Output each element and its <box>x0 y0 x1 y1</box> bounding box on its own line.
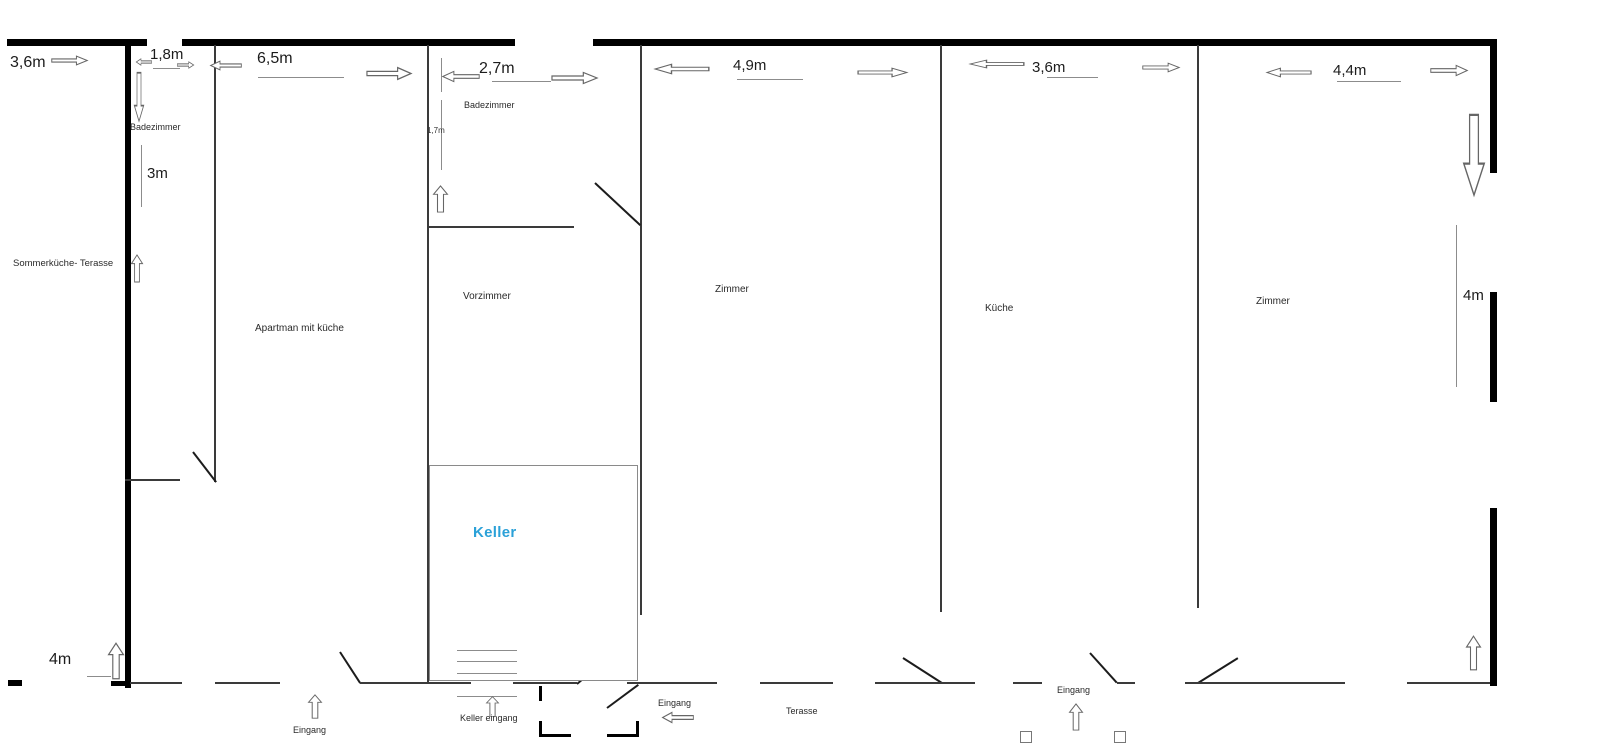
room-label-badezimmer-mid: Badezimmer <box>464 101 515 110</box>
entrance-label-eingang-left: Eingang <box>293 726 326 735</box>
entrance-label-keller-eingang: Keller eingang <box>460 714 518 723</box>
entrance-label-eingang-mid: Eingang <box>658 699 691 708</box>
square-marker-icon <box>1114 731 1126 743</box>
arrow-up-icon <box>1466 635 1481 671</box>
room-label-kueche: Küche <box>985 304 1013 314</box>
dim-zimmer-right-depth: 4m <box>1463 288 1484 303</box>
dim-left-entry-width: 4m <box>49 652 71 668</box>
room-label-apartman-mit-kueche: Apartman mit küche <box>255 324 344 334</box>
porch-wall-d <box>607 734 639 737</box>
dim-line-3m <box>141 145 142 207</box>
room-label-vorzimmer: Vorzimmer <box>463 292 511 302</box>
exterior-wall-left <box>125 39 131 688</box>
dim-sommer-width: 3,6m <box>10 55 46 71</box>
door-swing-eingang-right-a <box>1089 652 1117 683</box>
apartman-door-stub <box>125 479 180 481</box>
keller-room-label: Keller <box>473 525 517 540</box>
door-swing-zimmer-top <box>594 182 641 226</box>
vorzimmer-top-wall <box>427 226 574 228</box>
room-label-zimmer-right: Zimmer <box>1256 297 1290 307</box>
arrow-right-icon <box>551 71 598 85</box>
arrow-right-icon <box>857 67 908 78</box>
arrow-up-icon <box>108 642 124 680</box>
exterior-wall-top-b <box>182 39 515 46</box>
underline-2-7m <box>492 81 551 82</box>
dim-zimmer-right-width: 4,4m <box>1333 63 1366 78</box>
keller-stair-line-1 <box>457 650 517 651</box>
bottom-wall-2 <box>215 682 280 684</box>
arrow-down-icon <box>1463 112 1485 198</box>
bottom-wall-dash-far-left <box>8 680 22 686</box>
porch-wall-a <box>539 686 542 701</box>
dim-bad-mid-depth: 1,7m <box>427 127 445 135</box>
bottom-wall-6 <box>760 682 833 684</box>
bottom-wall-8 <box>1013 682 1042 684</box>
arrow-right-icon <box>366 66 412 81</box>
arrow-left-icon <box>1266 67 1312 78</box>
keller-room-outline <box>429 465 638 681</box>
dim-line-4m-right <box>1456 225 1457 387</box>
underline-3-6m-kueche <box>1047 77 1098 78</box>
divider-vorzimmer-right <box>640 45 642 615</box>
bottom-wall-7 <box>875 682 975 684</box>
divider-zimmer-kueche <box>940 45 942 612</box>
exterior-wall-right-top <box>1490 39 1497 173</box>
arrow-up-icon <box>433 185 448 213</box>
bottom-wall-5 <box>627 682 717 684</box>
porch-wall-e <box>636 721 639 737</box>
door-swing-terasse <box>902 657 942 684</box>
divider-kueche-zimmer <box>1197 45 1199 608</box>
arrow-up-icon <box>1069 703 1083 731</box>
arrow-left-icon <box>442 70 480 83</box>
bottom-wall-4 <box>513 682 577 684</box>
bottom-wall-1 <box>130 682 182 684</box>
arrow-left-icon <box>654 63 710 75</box>
underline-1-8m <box>153 68 180 69</box>
keller-stair-line-3 <box>457 673 517 674</box>
room-label-sommerkueche-terasse: Sommerküche- Terasse <box>13 259 113 269</box>
arrow-down-icon <box>134 71 144 123</box>
dim-bad-left-depth: 3m <box>147 166 168 181</box>
arrow-left-icon <box>969 59 1025 69</box>
door-swing-eingang-right-b <box>1197 657 1238 684</box>
room-label-badezimmer-left: Badezimmer <box>130 123 181 132</box>
bottom-wall-3 <box>360 682 471 684</box>
arrow-up-icon <box>131 254 143 283</box>
dim-apartman-width: 6,5m <box>257 51 293 67</box>
arrow-right-icon <box>51 55 88 66</box>
floor-plan: Keller 3,6m 1,8m 6,5m 2,7m 4,9m 3,6m 4,4… <box>0 0 1600 745</box>
bottom-wall-corner-stub <box>111 681 131 686</box>
underline-4-9m <box>737 79 803 80</box>
dim-zimmer-left-width: 4,9m <box>733 58 766 73</box>
arrow-right-icon <box>1142 62 1180 73</box>
exterior-wall-top-c <box>593 39 1490 46</box>
divider-apartman-left <box>214 45 216 482</box>
keller-stair-line-2 <box>457 661 517 662</box>
arrow-right-icon <box>1430 64 1468 77</box>
arrow-left-icon <box>210 60 242 71</box>
underline-4-4m <box>1337 81 1401 82</box>
dim-bad-mid-width: 2,7m <box>479 61 515 77</box>
arrow-left-icon <box>662 711 694 724</box>
room-label-zimmer-left: Zimmer <box>715 285 749 295</box>
door-swing-porch <box>606 684 639 709</box>
bottom-wall-10 <box>1185 682 1345 684</box>
room-label-terasse: Terasse <box>786 707 818 716</box>
square-marker-icon <box>1020 731 1032 743</box>
arrow-up-icon <box>308 694 322 719</box>
exterior-wall-right-mid <box>1490 292 1497 402</box>
bottom-wall-11 <box>1407 682 1490 684</box>
underline-6-5m <box>258 77 344 78</box>
dim-line-1-7m <box>441 100 442 170</box>
dim-kueche-width: 3,6m <box>1032 60 1065 75</box>
dim-bad-left-width: 1,8m <box>150 47 183 62</box>
exterior-wall-right-bottom <box>1490 508 1497 686</box>
bottom-wall-9 <box>1117 682 1135 684</box>
porch-wall-c <box>539 734 571 737</box>
door-swing-eingang-left <box>339 651 361 683</box>
entrance-label-eingang-right: Eingang <box>1057 686 1090 695</box>
